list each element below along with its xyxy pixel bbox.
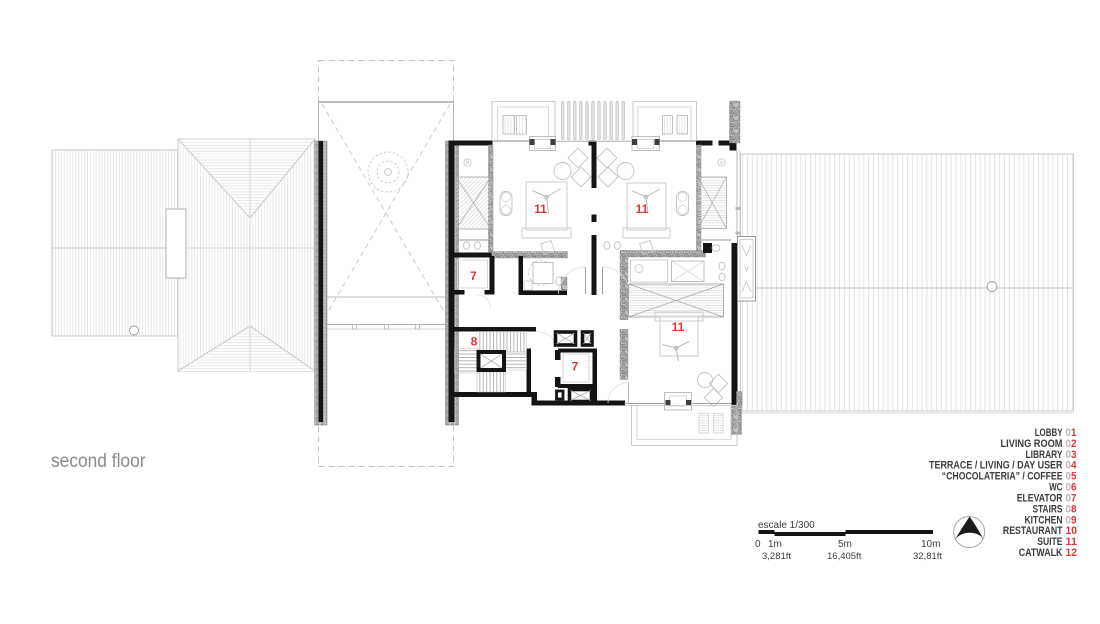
svg-text:7: 7 [572,360,579,374]
svg-text:5m: 5m [838,539,852,550]
svg-text:CATWALK: CATWALK [1019,547,1063,559]
svg-text:12: 12 [1066,547,1078,559]
svg-text:0: 0 [755,539,761,550]
svg-text:11: 11 [636,202,649,216]
svg-text:16,405ft: 16,405ft [827,551,862,562]
svg-text:8: 8 [471,335,478,349]
svg-text:10m: 10m [921,539,940,550]
svg-text:escale 1/300: escale 1/300 [758,520,815,531]
svg-text:11: 11 [672,320,685,334]
svg-text:3,281ft: 3,281ft [762,551,791,562]
svg-text:7: 7 [470,269,477,283]
svg-text:11: 11 [534,202,547,216]
svg-text:1m: 1m [768,539,782,550]
svg-text:second floor: second floor [51,451,146,472]
svg-text:“CHOCOLATERIA” / COFFEE: “CHOCOLATERIA” / COFFEE [942,471,1063,483]
svg-text:32,81ft: 32,81ft [913,551,942,562]
